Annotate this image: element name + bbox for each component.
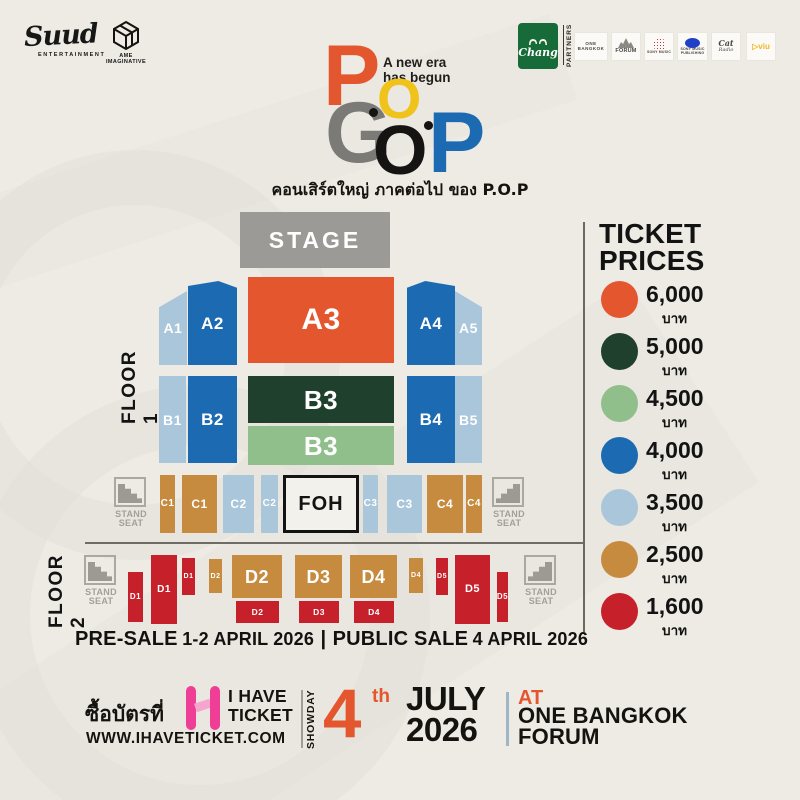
price-currency: บาท xyxy=(662,307,704,329)
seat-section-a3: A3 xyxy=(248,277,394,363)
seat-section-b4: B4 xyxy=(407,376,455,463)
price-color-dot xyxy=(601,385,638,422)
stairs-icon xyxy=(84,555,116,585)
stand-seat-area: STANDSEAT xyxy=(114,477,148,529)
price-item: 3,500บาท xyxy=(601,489,704,537)
seat-section-d5: D5 xyxy=(497,572,508,622)
price-currency: บาท xyxy=(662,567,704,589)
price-amount: 5,000 xyxy=(646,335,704,358)
cube-icon xyxy=(111,20,141,50)
price-currency: บาท xyxy=(662,619,704,641)
seat-section-d4: D4 xyxy=(350,555,397,598)
ihaveticket-h-icon xyxy=(186,686,220,730)
seat-section-c1: C1 xyxy=(182,475,217,533)
seat-section-d4: D4 xyxy=(409,558,423,593)
partner-logo-one-bangkok: ONE BANGKOK xyxy=(575,33,607,60)
stairs-icon xyxy=(524,555,556,585)
venue-line2: FORUM xyxy=(518,727,688,748)
seat-section-c4: C4 xyxy=(466,475,482,533)
price-item: 1,600บาท xyxy=(601,593,704,641)
ticket-prices-title: TICKET PRICES xyxy=(599,221,704,274)
price-currency: บาท xyxy=(662,463,704,485)
footer-divider-2 xyxy=(506,692,509,746)
seat-section-c1: C1 xyxy=(160,475,175,533)
partners-label: PARTNERS xyxy=(566,27,573,67)
seat-section-a5: A5 xyxy=(455,291,482,365)
price-currency: บาท xyxy=(662,359,704,381)
stand-seat-area: STANDSEAT xyxy=(84,555,118,607)
price-amount: 2,500 xyxy=(646,543,704,566)
stand-seat-label: STANDSEAT xyxy=(524,588,558,607)
seat-section-c2: C2 xyxy=(223,475,254,533)
presale-label: PRE-SALE xyxy=(75,628,178,650)
ihaveticket-wordmark: I HAVE TICKET xyxy=(228,687,293,725)
partners-divider xyxy=(563,25,564,65)
public-sale-label: PUBLIC SALE xyxy=(333,628,469,650)
price-color-dot xyxy=(601,437,638,474)
price-color-dot xyxy=(601,333,638,370)
footer-divider-1 xyxy=(301,690,303,748)
seat-section-d5: D5 xyxy=(455,555,490,624)
price-color-dot xyxy=(601,541,638,578)
seat-section-b1: B1 xyxy=(159,376,186,463)
suud-logo-sub: ENTERTAINMENT xyxy=(38,52,105,58)
partner-logo-one-bangkok-forum: FORUM xyxy=(612,33,640,60)
suud-logo-name: Suud xyxy=(23,18,106,53)
buy-tickets-thai: ซื้อบัตรที่ xyxy=(85,698,164,731)
seat-section-d2: D2 xyxy=(209,559,222,593)
stage-block: STAGE xyxy=(240,212,390,268)
seat-section-a2: A2 xyxy=(188,281,237,365)
prices-title-line2: PRICES xyxy=(599,248,704,275)
price-amount: 4,000 xyxy=(646,439,704,462)
stairs-icon xyxy=(114,477,146,507)
show-day-suffix: th xyxy=(372,686,390,708)
seat-section-d3: D3 xyxy=(299,601,339,623)
seat-section-c4: C4 xyxy=(427,475,463,533)
show-year: 2026 xyxy=(406,715,485,746)
price-amount: 3,500 xyxy=(646,491,704,514)
floor1-label: FLOOR 1 xyxy=(119,340,163,424)
partner-logo-sony-music: SONY MUSIC xyxy=(645,33,673,60)
stand-seat-label: STANDSEAT xyxy=(84,588,118,607)
seat-section-d1: D1 xyxy=(182,558,195,595)
public-sale-dates: 4 APRIL 2026 xyxy=(473,629,588,649)
price-item: 6,000บาท xyxy=(601,281,704,329)
show-month-year: JULY 2026 xyxy=(406,684,485,745)
prices-panel-divider xyxy=(583,222,585,632)
ihave-line1: I HAVE xyxy=(228,687,293,706)
seat-section-d2: D2 xyxy=(236,601,279,623)
price-color-dot xyxy=(601,489,638,526)
seat-section-d5: D5 xyxy=(436,558,448,595)
price-item: 5,000บาท xyxy=(601,333,704,381)
seat-section-b3: B3 xyxy=(248,426,394,465)
venue-name: ONE BANGKOK FORUM xyxy=(518,706,688,748)
sale-dates-line: PRE-SALE 1-2 APRIL 2026 | PUBLIC SALE 4 … xyxy=(75,628,555,651)
stairs-icon xyxy=(492,477,524,507)
seat-section-d2: D2 xyxy=(232,555,282,598)
stand-seat-area: STANDSEAT xyxy=(524,555,558,607)
partner-logo-cat-radio: CatRadio xyxy=(712,33,740,60)
seat-section-b5: B5 xyxy=(455,376,482,463)
seat-section-d1: D1 xyxy=(151,555,177,624)
ihave-line2: TICKET xyxy=(228,706,293,725)
stand-seat-area: STANDSEAT xyxy=(492,477,526,529)
price-amount: 4,500 xyxy=(646,387,704,410)
ame-label: AME IMAGINATIVE xyxy=(100,53,152,65)
seat-section-b3: B3 xyxy=(248,376,394,423)
seat-section-d4: D4 xyxy=(354,601,394,623)
floor-divider-line xyxy=(85,542,583,544)
pop-logo-dot xyxy=(424,121,433,130)
seat-section-c3: C3 xyxy=(387,475,422,533)
seat-section-c3: C3 xyxy=(363,475,378,533)
concert-poster: Suud ENTERTAINMENT AME IMAGINATIVE Chang… xyxy=(0,0,800,800)
seat-section-c2: C2 xyxy=(261,475,278,533)
chang-wordmark: Chang xyxy=(518,47,558,58)
price-item: 4,500บาท xyxy=(601,385,704,433)
price-item: 4,000บาท xyxy=(601,437,704,485)
price-item: 2,500บาท xyxy=(601,541,704,589)
sale-separator: | xyxy=(321,628,327,650)
price-color-dot xyxy=(601,281,638,318)
pop-logo-dot xyxy=(369,108,378,117)
presale-dates: 1-2 APRIL 2026 xyxy=(182,629,314,649)
pop-logo-letter: O xyxy=(373,115,427,185)
seat-section-b2: B2 xyxy=(188,376,237,463)
show-day-number: 4 xyxy=(323,679,359,748)
partner-logo-sony-music-publishing: SONY MUSICPUBLISHING xyxy=(678,33,707,60)
suud-entertainment-logo: Suud ENTERTAINMENT xyxy=(24,20,105,58)
seat-section-d3: D3 xyxy=(295,555,342,598)
pop-logo-letter: P xyxy=(428,100,485,186)
price-currency: บาท xyxy=(662,411,704,433)
price-amount: 6,000 xyxy=(646,283,704,306)
h-right-bar xyxy=(210,686,220,730)
chang-logo: Chang xyxy=(518,23,558,69)
elephants-icon xyxy=(527,35,549,47)
showday-label: SHOWDAY xyxy=(305,689,317,749)
price-currency: บาท xyxy=(662,515,704,537)
ame-imaginative-logo: AME IMAGINATIVE xyxy=(100,20,152,65)
price-amount: 1,600 xyxy=(646,595,704,618)
stand-seat-label: STANDSEAT xyxy=(492,510,526,529)
seat-section-foh: FOH xyxy=(283,475,359,533)
stand-seat-label: STANDSEAT xyxy=(114,510,148,529)
seat-section-d1: D1 xyxy=(128,572,143,622)
seat-section-a4: A4 xyxy=(407,281,455,365)
website-url: WWW.IHAVETICKET.COM xyxy=(86,730,286,748)
partner-logo-viu: ▷viu xyxy=(747,33,775,60)
prices-title-line1: TICKET xyxy=(599,221,704,248)
price-color-dot xyxy=(601,593,638,630)
